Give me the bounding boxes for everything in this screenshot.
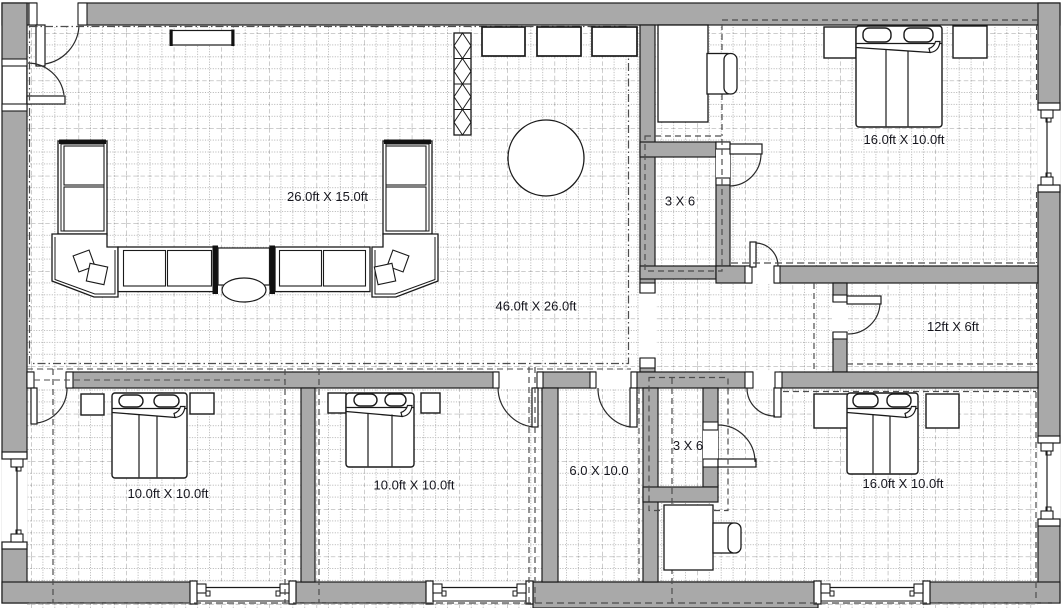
svg-text:10.0ft X 10.0ft: 10.0ft X 10.0ft [374, 477, 455, 492]
svg-text:3 X 6: 3 X 6 [673, 438, 703, 453]
svg-text:46.0ft X 26.0ft: 46.0ft X 26.0ft [496, 298, 577, 313]
svg-text:26.0ft X 15.0ft: 26.0ft X 15.0ft [287, 189, 368, 204]
svg-text:16.0ft X 10.0ft: 16.0ft X 10.0ft [864, 132, 945, 147]
svg-text:3 X 6: 3 X 6 [665, 193, 695, 208]
svg-text:16.0ft X 10.0ft: 16.0ft X 10.0ft [863, 476, 944, 491]
svg-text:12ft X 6ft: 12ft X 6ft [927, 319, 979, 334]
svg-text:10.0ft X 10.0ft: 10.0ft X 10.0ft [128, 486, 209, 501]
svg-text:6.0 X 10.0: 6.0 X 10.0 [569, 463, 628, 478]
